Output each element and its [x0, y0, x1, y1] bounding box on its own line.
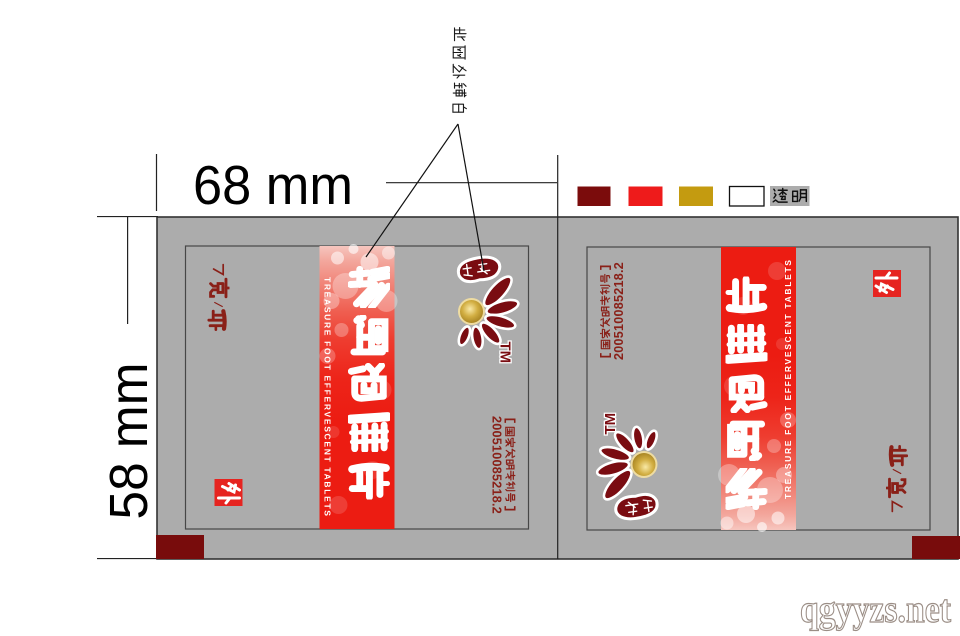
svg-text:58 mm: 58 mm [99, 363, 159, 520]
svg-text:qgyyzs.net: qgyyzs.net [800, 588, 951, 631]
svg-text:68 mm: 68 mm [193, 154, 353, 216]
